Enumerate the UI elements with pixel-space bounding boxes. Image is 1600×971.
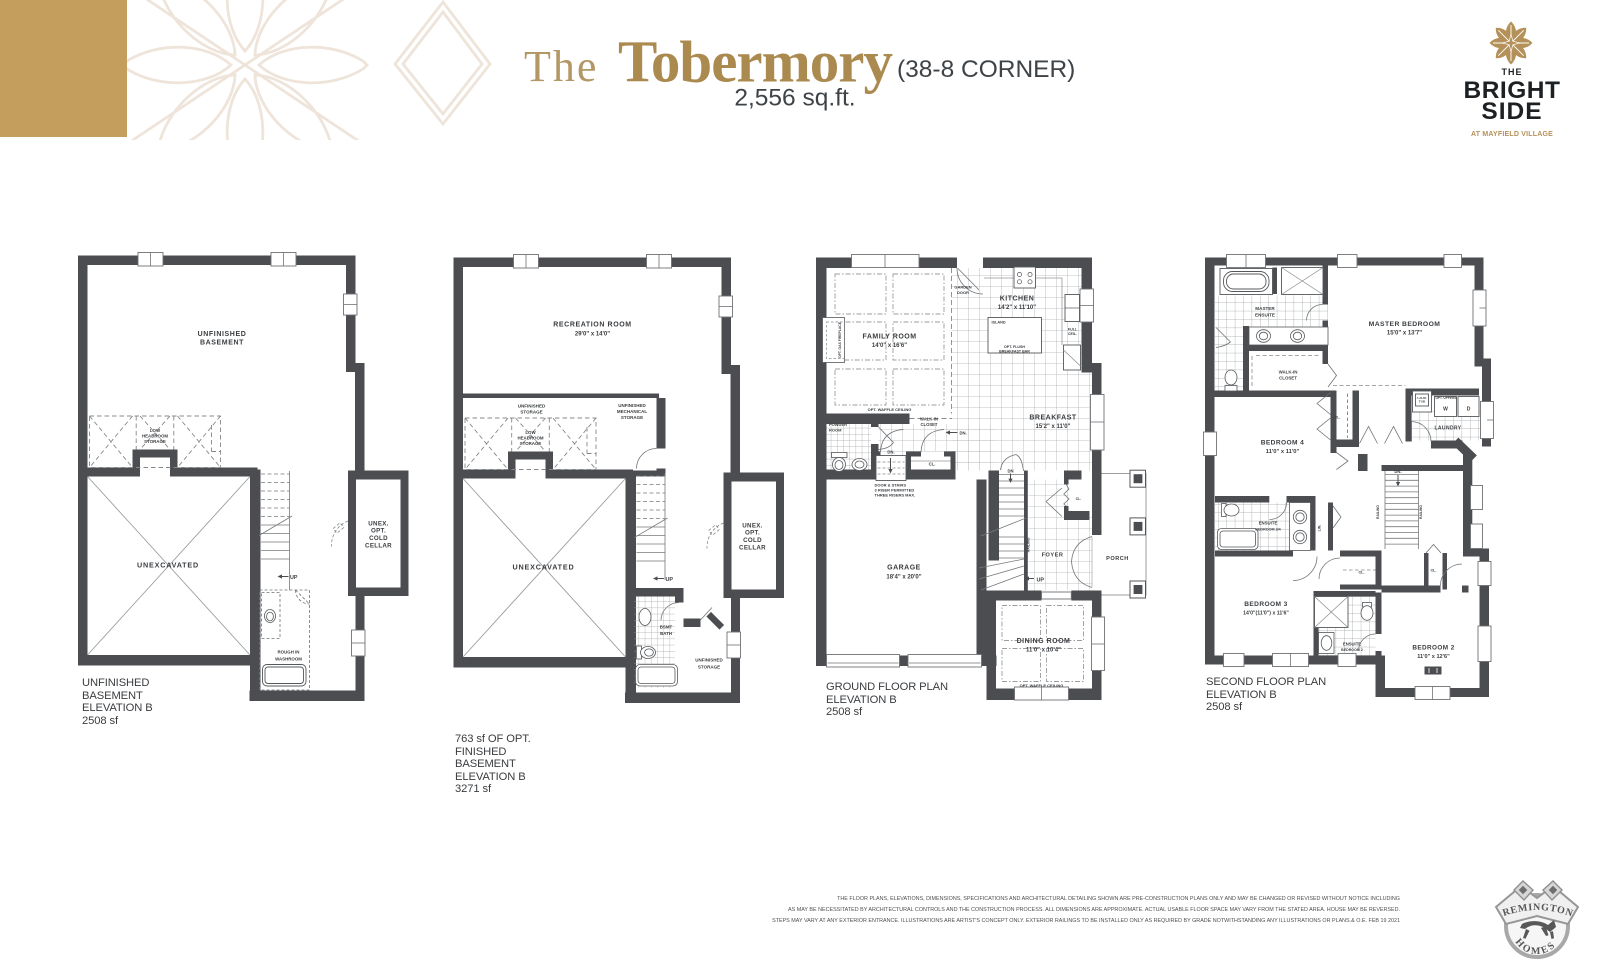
svg-text:CL.: CL. <box>1335 416 1341 420</box>
svg-text:15'0" x 13'7": 15'0" x 13'7" <box>1387 331 1422 337</box>
svg-text:CLOSET: CLOSET <box>1279 376 1297 381</box>
svg-text:DOOR: DOOR <box>957 290 969 295</box>
svg-text:LOW: LOW <box>525 430 536 435</box>
svg-text:MASTER: MASTER <box>1255 306 1275 311</box>
svg-text:UNEX.: UNEX. <box>368 521 388 528</box>
svg-text:THREE RISERS MAX.: THREE RISERS MAX. <box>875 493 916 498</box>
svg-text:OPT. WAFFLE CEILING: OPT. WAFFLE CEILING <box>868 407 912 412</box>
svg-text:BEDROOM 3: BEDROOM 3 <box>1244 601 1288 608</box>
svg-text:RECREATION ROOM: RECREATION ROOM <box>553 322 631 329</box>
svg-text:ENSUITE: ENSUITE <box>1259 521 1278 526</box>
svg-text:11'0" x 12'6": 11'0" x 12'6" <box>1417 654 1450 660</box>
svg-text:BEDROOM 2: BEDROOM 2 <box>1341 648 1363 652</box>
svg-text:OPT. WAFFLE CEILING: OPT. WAFFLE CEILING <box>1020 683 1064 688</box>
svg-text:WALK-IN: WALK-IN <box>920 417 938 422</box>
svg-text:UP: UP <box>666 577 674 583</box>
svg-text:BATH: BATH <box>660 631 672 636</box>
svg-text:MASTER BEDROOM: MASTER BEDROOM <box>1369 321 1441 328</box>
svg-text:OPT.: OPT. <box>745 530 760 537</box>
svg-text:CELLAR: CELLAR <box>739 545 766 552</box>
svg-text:STORAGE: STORAGE <box>144 439 166 444</box>
svg-text:CL.: CL. <box>929 462 936 467</box>
svg-text:MECHANICAL: MECHANICAL <box>617 409 647 414</box>
svg-text:FOYER: FOYER <box>1042 553 1064 559</box>
svg-text:OPT.: OPT. <box>371 528 386 535</box>
svg-text:DINING ROOM: DINING ROOM <box>1017 638 1071 645</box>
svg-text:DN.: DN. <box>960 431 967 436</box>
svg-text:BREAKFAST BAR: BREAKFAST BAR <box>999 350 1030 354</box>
svg-text:STORAGE: STORAGE <box>520 410 542 415</box>
svg-text:UNFINISHED: UNFINISHED <box>695 658 723 663</box>
svg-text:UNEX.: UNEX. <box>742 523 762 530</box>
svg-text:UP: UP <box>290 575 298 581</box>
svg-text:TUB: TUB <box>1419 400 1426 404</box>
svg-text:COLD: COLD <box>369 535 388 542</box>
svg-text:BEDROOM 4: BEDROOM 4 <box>1261 440 1305 447</box>
svg-text:UNEXCAVATED: UNEXCAVATED <box>137 561 199 570</box>
svg-text:BEDROOM 3/4: BEDROOM 3/4 <box>1255 528 1281 532</box>
svg-text:UNEXCAVATED: UNEXCAVATED <box>513 563 575 572</box>
svg-text:UP: UP <box>1037 578 1045 584</box>
svg-text:CL.: CL. <box>1076 497 1082 501</box>
svg-text:KITCHEN: KITCHEN <box>1000 296 1035 303</box>
svg-text:BREAKFAST: BREAKFAST <box>1029 415 1077 422</box>
svg-text:CELLAR: CELLAR <box>365 543 392 550</box>
svg-text:11'0" x 11'0": 11'0" x 11'0" <box>1266 449 1300 455</box>
svg-text:D: D <box>1467 407 1471 413</box>
svg-text:LOW: LOW <box>150 428 161 433</box>
svg-text:29'0" x 14'0": 29'0" x 14'0" <box>575 332 610 338</box>
svg-text:ISLAND: ISLAND <box>992 321 1006 325</box>
svg-text:CEIL.: CEIL. <box>1068 332 1077 336</box>
svg-text:FULL: FULL <box>1068 328 1078 332</box>
svg-text:15'2" x 11'0": 15'2" x 11'0" <box>1036 424 1071 430</box>
svg-text:RAILING: RAILING <box>1027 537 1031 552</box>
svg-text:BSMT: BSMT <box>660 625 673 630</box>
svg-text:STORAGE: STORAGE <box>520 441 542 446</box>
svg-text:UNFINISHED: UNFINISHED <box>198 331 247 338</box>
svg-text:LIN.: LIN. <box>1318 525 1322 532</box>
svg-text:DN: DN <box>1007 469 1013 474</box>
svg-text:UNFINISHED: UNFINISHED <box>518 404 546 409</box>
svg-text:LAUNDRY: LAUNDRY <box>1434 426 1461 432</box>
svg-text:HEADROOM: HEADROOM <box>517 436 543 441</box>
svg-text:OPT. GAS FIREPLACE: OPT. GAS FIREPLACE <box>838 321 842 358</box>
svg-text:GARAGE: GARAGE <box>887 565 921 572</box>
svg-text:OPT. UPPERS: OPT. UPPERS <box>1435 396 1456 400</box>
svg-text:PORCH: PORCH <box>1106 556 1129 562</box>
svg-text:RAILING: RAILING <box>1419 505 1423 519</box>
svg-text:WALK-IN: WALK-IN <box>1279 370 1298 375</box>
svg-text:OPT. FLUSH: OPT. FLUSH <box>1004 345 1025 349</box>
svg-text:BEDROOM 2: BEDROOM 2 <box>1412 645 1454 652</box>
svg-text:STORAGE: STORAGE <box>698 665 720 670</box>
svg-text:ENSUITE: ENSUITE <box>1255 313 1275 318</box>
svg-text:CLOSET: CLOSET <box>921 422 938 427</box>
svg-text:ROOM: ROOM <box>829 428 842 433</box>
svg-text:RAILING: RAILING <box>1376 505 1380 519</box>
svg-text:14'2" x 11'10": 14'2" x 11'10" <box>998 305 1036 311</box>
svg-text:11'0" x 10'4": 11'0" x 10'4" <box>1026 648 1061 654</box>
svg-text:HEADROOM: HEADROOM <box>142 434 168 439</box>
svg-text:GARDEN: GARDEN <box>954 285 971 290</box>
svg-text:18'4" x 20'0": 18'4" x 20'0" <box>886 575 921 581</box>
svg-text:WASHROOM: WASHROOM <box>275 657 302 662</box>
svg-text:DN.: DN. <box>1394 469 1401 474</box>
svg-text:FAMILY ROOM: FAMILY ROOM <box>862 334 916 341</box>
svg-text:ROUGH IN: ROUGH IN <box>278 650 300 655</box>
svg-text:CL.: CL. <box>1358 571 1364 575</box>
svg-text:BASEMENT: BASEMENT <box>200 340 244 347</box>
svg-text:POWDER: POWDER <box>829 422 847 427</box>
svg-text:W: W <box>1443 407 1448 413</box>
svg-text:CL.: CL. <box>1430 569 1436 573</box>
svg-text:ENSUITE: ENSUITE <box>1343 642 1361 647</box>
svg-text:STORAGE: STORAGE <box>621 415 643 420</box>
svg-text:14'0"(11'0") x 11'6": 14'0"(11'0") x 11'6" <box>1243 611 1289 617</box>
svg-text:COLD: COLD <box>743 537 762 544</box>
svg-text:14'0" x 16'6": 14'0" x 16'6" <box>872 343 907 349</box>
svg-text:UNFINISHED: UNFINISHED <box>618 403 646 408</box>
svg-text:DN.: DN. <box>887 450 894 455</box>
